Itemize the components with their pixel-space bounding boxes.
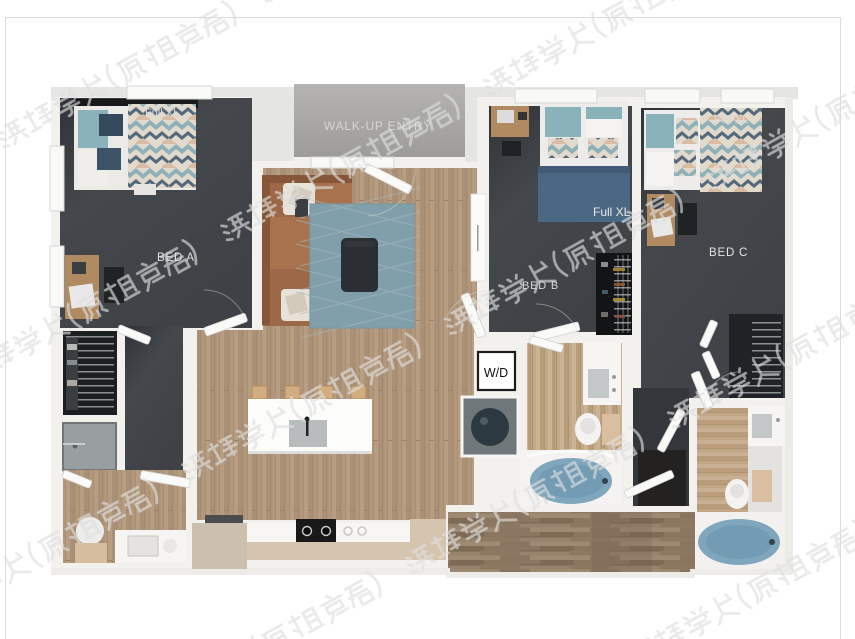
svg-text:Full XL: Full XL	[593, 205, 631, 219]
svg-text:BED C: BED C	[709, 247, 748, 259]
svg-text:Full XL: Full XL	[714, 114, 748, 126]
svg-text:Full XL: Full XL	[145, 107, 179, 119]
svg-text:W/D: W/D	[484, 366, 508, 380]
